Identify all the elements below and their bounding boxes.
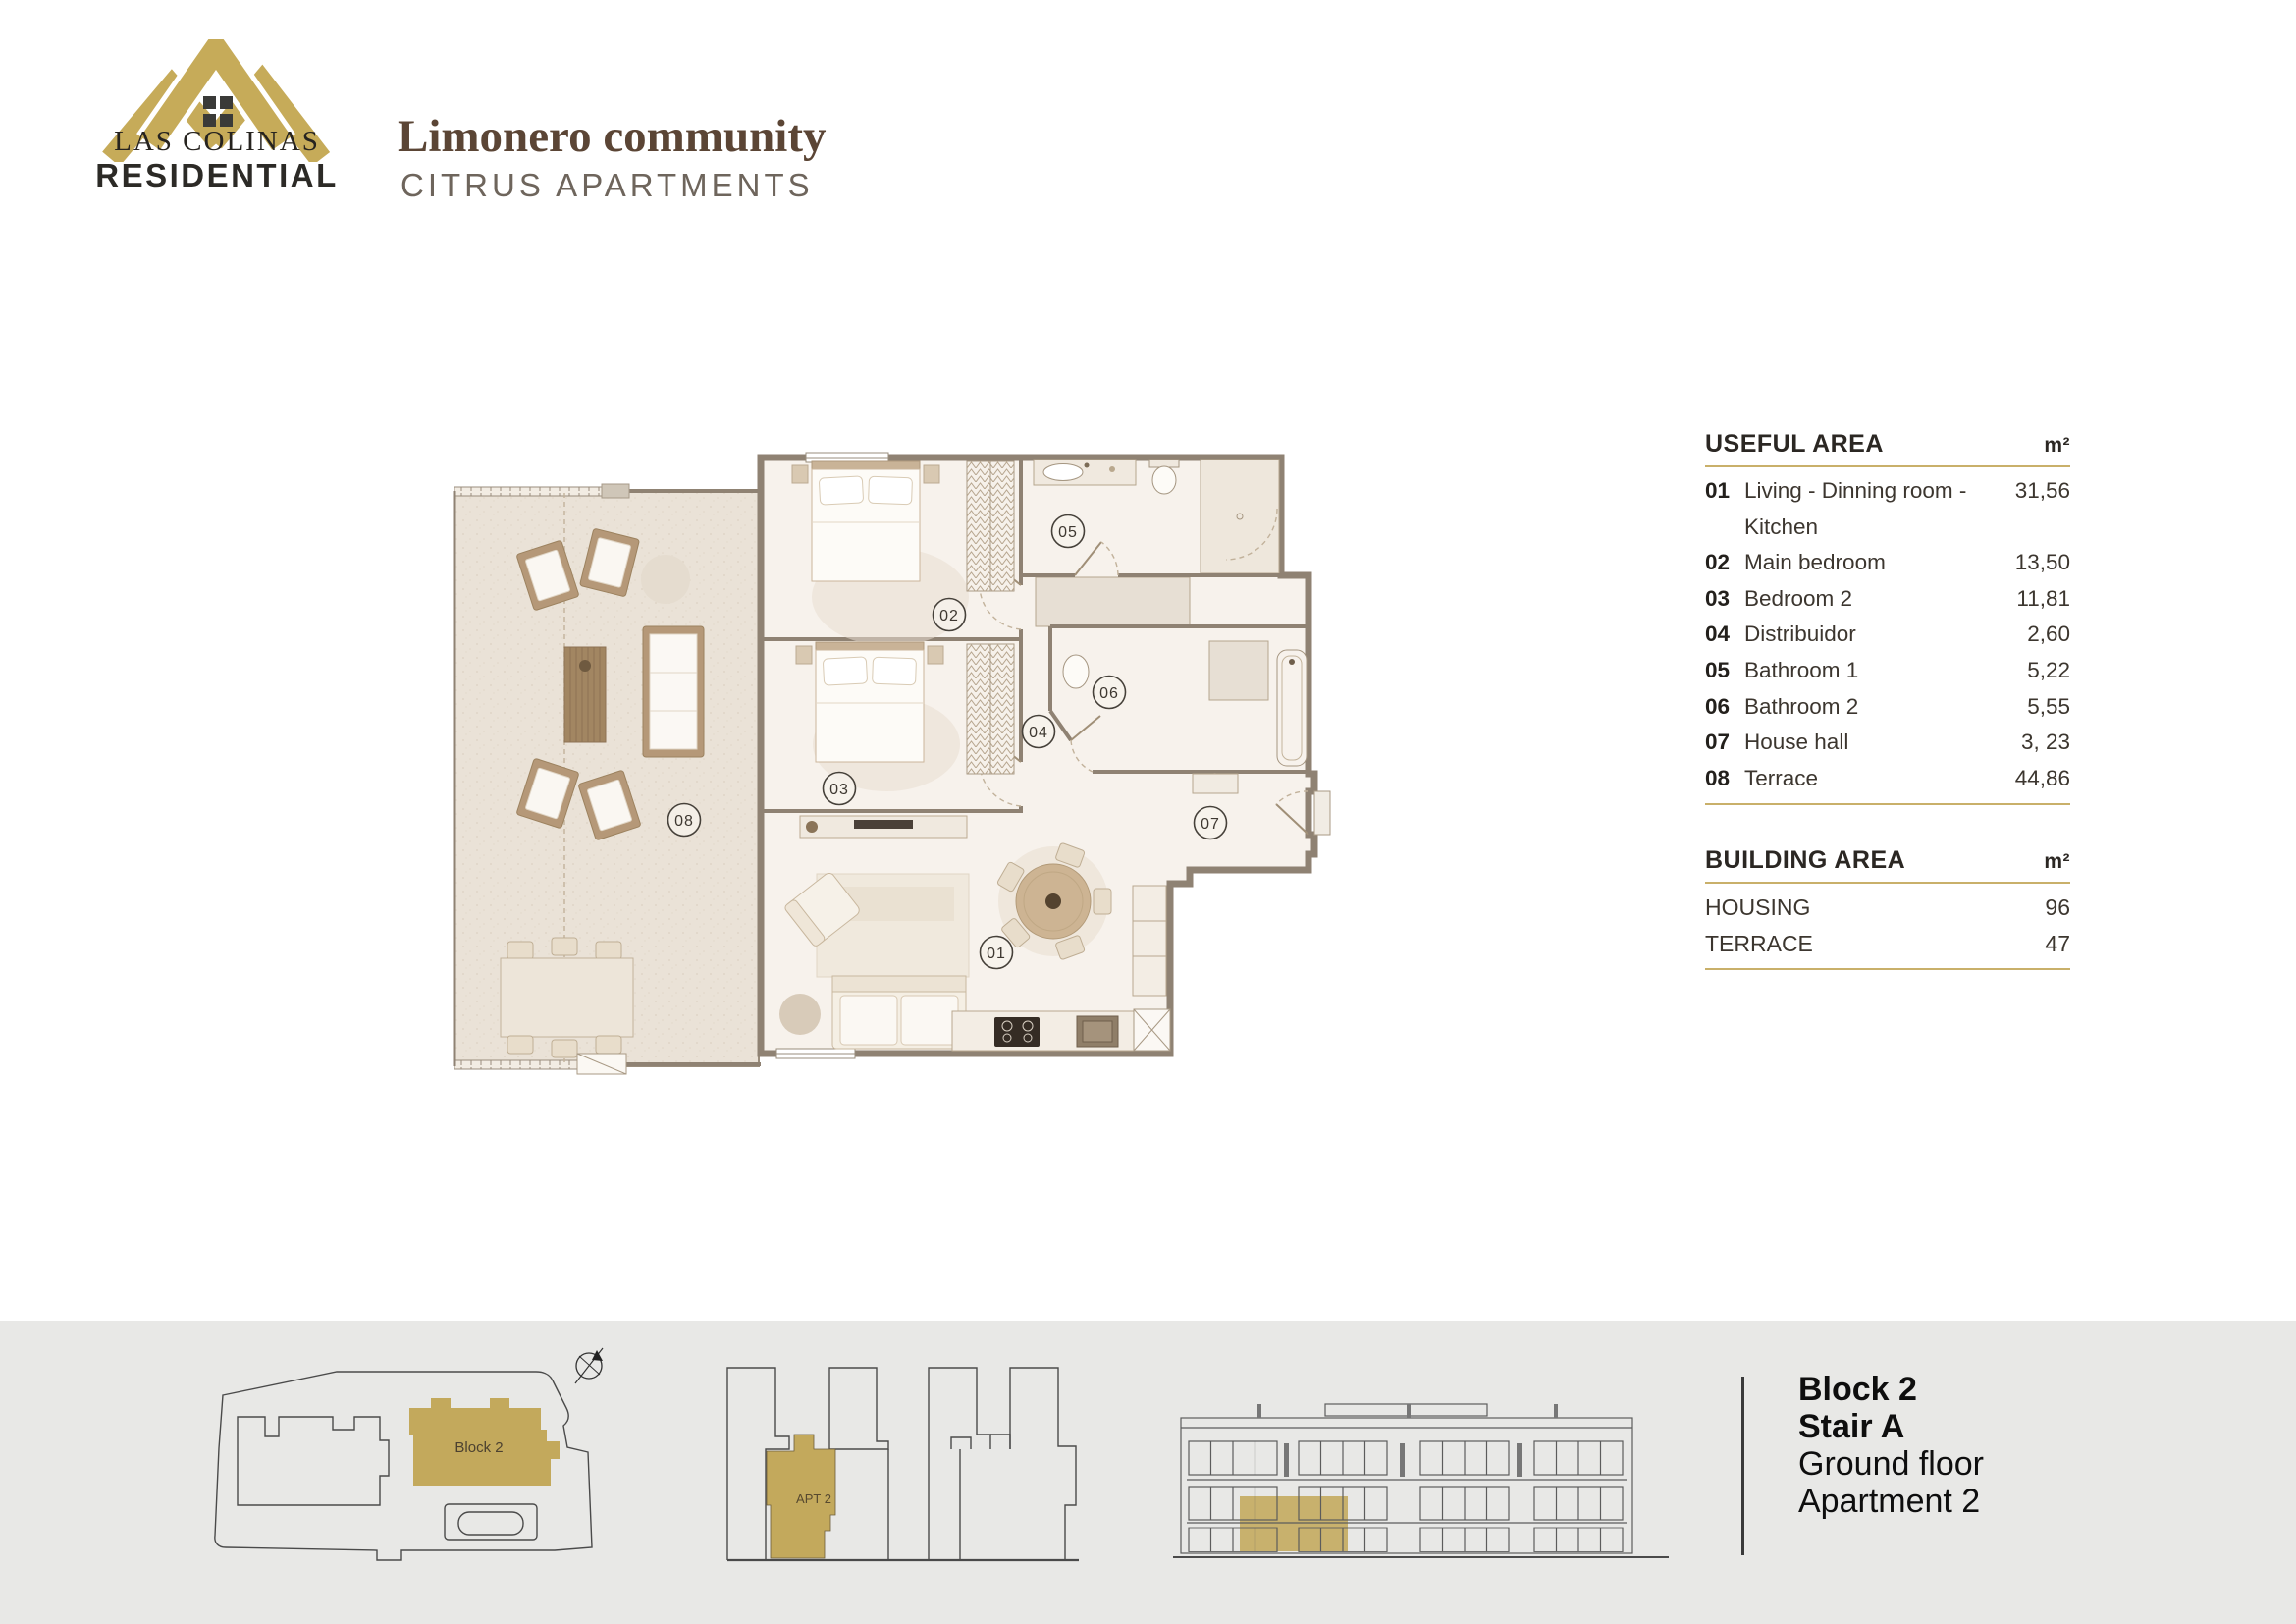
room-area-value: 31,56 (2015, 473, 2070, 545)
room-area-value: 2,60 (2027, 617, 2070, 653)
building-elevation (1173, 1386, 1669, 1568)
room-number: 04 (1705, 617, 1744, 653)
main-bed (812, 461, 920, 581)
gold-rule (1705, 803, 2070, 805)
area-row: 08 Terrace 44,86 (1705, 761, 2070, 797)
useful-area-rows: 01 Living - Dinning room - Kitchen 31,56… (1705, 473, 2070, 796)
other-block-footprint (238, 1417, 389, 1505)
room-label: Main bedroom (1744, 545, 2015, 581)
building-area-header: BUILDING AREA m² (1705, 846, 2070, 875)
brochure-page: LAS COLINAS RESIDENTIAL Limonero communi… (0, 0, 2296, 1624)
svg-text:03: 03 (829, 782, 849, 798)
terrace-area (454, 484, 761, 1069)
building-area-unit: m² (2044, 850, 2070, 874)
room-label: Bathroom 1 (1744, 653, 2027, 689)
area-row: 06 Bathroom 2 5,55 (1705, 689, 2070, 726)
nightstand (792, 465, 808, 483)
info-line: Apartment 2 (1798, 1483, 1984, 1520)
nightstand (928, 646, 943, 664)
room-number: 01 (1705, 473, 1744, 545)
cooktop (994, 1017, 1040, 1047)
floor-plant (779, 994, 821, 1035)
room-number: 02 (1705, 545, 1744, 581)
shower-area (1201, 460, 1279, 573)
room-area-value: 11,81 (2016, 581, 2070, 618)
room-number: 07 (1705, 725, 1744, 761)
info-line: Ground floor (1798, 1445, 1984, 1483)
entry-step (1314, 791, 1330, 835)
apt2-label: APT 2 (796, 1491, 831, 1506)
area-value: 47 (2045, 926, 2070, 962)
room-label: Living - Dinning room - Kitchen (1744, 473, 2015, 545)
room-label: Terrace (1744, 761, 2015, 797)
terrace-wood-table (564, 647, 606, 742)
north-arrow-icon (575, 1348, 603, 1383)
room-label: Bedroom 2 (1744, 581, 2016, 618)
room-number: 05 (1705, 653, 1744, 689)
svg-text:06: 06 (1099, 685, 1119, 702)
page-subtitle: CITRUS APARTMENTS (400, 167, 814, 204)
ground-floor-highlight (1240, 1496, 1348, 1551)
room-area-value: 5,22 (2027, 653, 2070, 689)
area-value: 96 (2045, 890, 2070, 926)
useful-area-title: USEFUL AREA (1705, 430, 1884, 459)
area-label: HOUSING (1705, 890, 1810, 926)
area-row: 05 Bathroom 1 5,22 (1705, 653, 2070, 689)
info-line: Block 2 (1798, 1371, 1984, 1408)
room-number: 08 (1705, 761, 1744, 797)
area-row: 01 Living - Dinning room - Kitchen 31,56 (1705, 473, 2070, 545)
room-area-value: 5,55 (2027, 689, 2070, 726)
gold-rule (1705, 882, 2070, 884)
svg-text:02: 02 (939, 608, 959, 624)
room-number: 06 (1705, 689, 1744, 726)
terrace-dining-set (501, 938, 633, 1057)
room-number: 03 (1705, 581, 1744, 618)
svg-text:01: 01 (987, 946, 1006, 962)
terrace-plant (641, 555, 690, 604)
area-label: TERRACE (1705, 926, 1813, 962)
svg-text:08: 08 (674, 813, 694, 830)
room-area-value: 44,86 (2015, 761, 2070, 797)
page-title: Limonero community (398, 110, 826, 163)
area-row: 07 House hall 3, 23 (1705, 725, 2070, 761)
apartment-info: Block 2 Stair A Ground floor Apartment 2 (1798, 1371, 1984, 1520)
wardrobe (967, 644, 1014, 774)
bathroom2-storage (1209, 641, 1268, 700)
sofa (832, 976, 966, 1049)
useful-area-header: USEFUL AREA m² (1705, 430, 2070, 459)
pool (445, 1504, 537, 1540)
brand-sub-name: RESIDENTIAL (90, 157, 344, 194)
area-row: HOUSING 96 (1705, 890, 2070, 926)
area-row: 02 Main bedroom 13,50 (1705, 545, 2070, 581)
gold-rule (1705, 968, 2070, 970)
info-line: Stair A (1798, 1408, 1984, 1445)
useful-area-unit: m² (2044, 434, 2070, 458)
area-table: USEFUL AREA m² 01 Living - Dinning room … (1705, 430, 2070, 976)
room-label: Distribuidor (1744, 617, 2027, 653)
site-plan: Block 2 (177, 1330, 628, 1591)
building-area-rows: HOUSING 96 TERRACE 47 (1705, 890, 2070, 961)
nightstand (796, 646, 812, 664)
brand-name: LAS COLINAS (94, 126, 340, 158)
building-section: APT 2 (720, 1348, 1093, 1579)
svg-text:05: 05 (1058, 524, 1078, 541)
room-area-value: 3, 23 (2021, 725, 2070, 761)
room-area-value: 13,50 (2015, 545, 2070, 581)
wardrobe (967, 461, 1014, 591)
terrace-daybed (643, 626, 704, 757)
room-label: House hall (1744, 725, 2021, 761)
nightstand (924, 465, 939, 483)
svg-text:04: 04 (1029, 725, 1048, 741)
closet-area (1036, 577, 1190, 626)
svg-text:07: 07 (1201, 816, 1220, 833)
area-row: 03 Bedroom 2 11,81 (1705, 581, 2070, 618)
bedroom2-bed (816, 642, 924, 762)
block2-label: Block 2 (454, 1439, 503, 1456)
info-divider (1741, 1377, 1744, 1555)
area-row: 04 Distribuidor 2,60 (1705, 617, 2070, 653)
gold-rule (1705, 465, 2070, 467)
building-area-block: BUILDING AREA m² HOUSING 96 TERRACE 47 (1705, 846, 2070, 970)
hall-closet (1193, 774, 1238, 793)
floor-plan: 01 02 03 04 05 06 07 08 (447, 448, 1369, 1080)
room-label: Bathroom 2 (1744, 689, 2027, 726)
building-area-title: BUILDING AREA (1705, 846, 1905, 875)
area-row: TERRACE 47 (1705, 926, 2070, 962)
